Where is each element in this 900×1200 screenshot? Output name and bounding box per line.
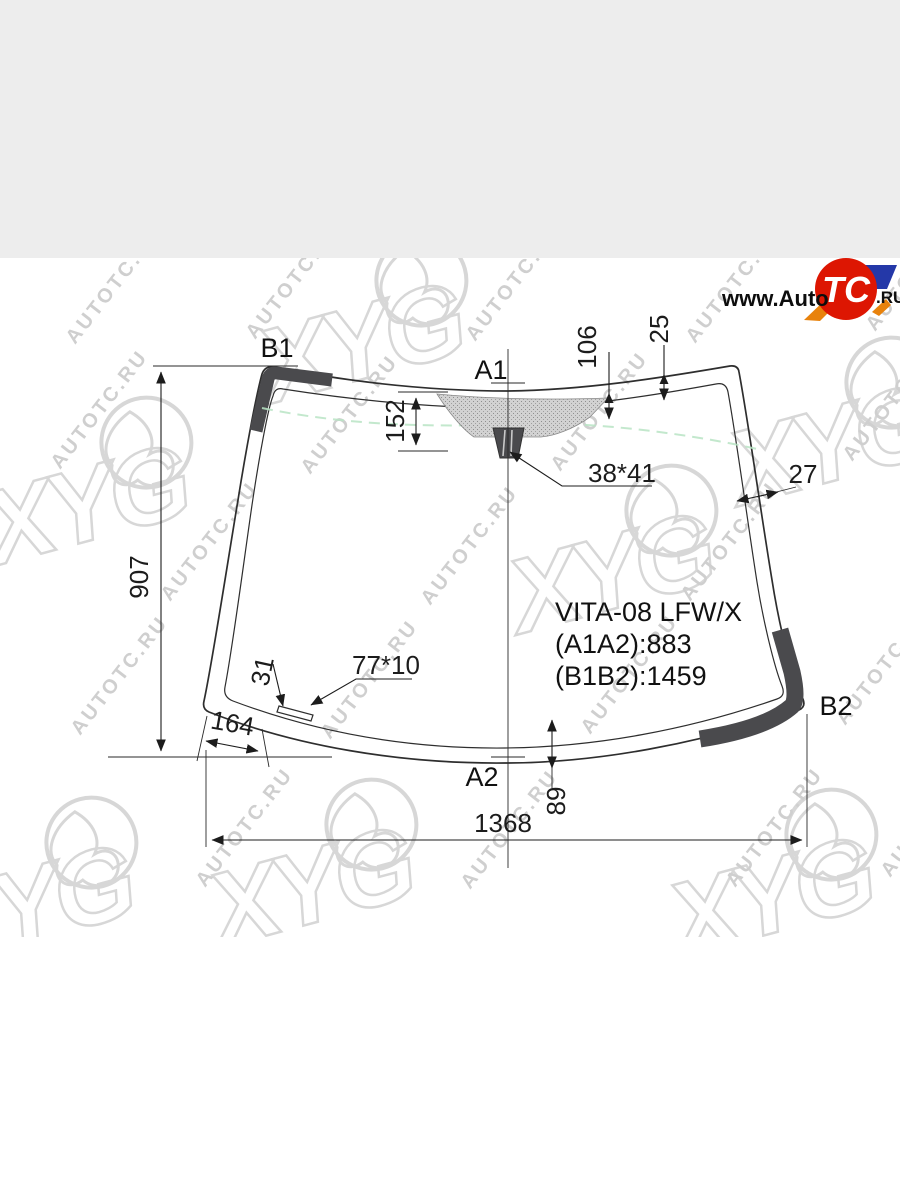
label-a1: A1 <box>474 355 507 385</box>
dim-89-label: 89 <box>541 787 571 816</box>
dim-27-label: 27 <box>789 459 818 489</box>
dim-25-label: 25 <box>644 315 674 344</box>
dim-1368-label: 1368 <box>474 808 532 838</box>
windshield-diagram-image: XYG AUTOTC.RU AUTOTC.RU AUTOTC.RU AUTOTC… <box>0 0 900 1200</box>
dim-38x41-label: 38*41 <box>588 458 656 488</box>
part-dim-a1a2: (A1A2):883 <box>555 629 692 659</box>
autotc-watermark: AUTOTC.RU <box>877 754 900 881</box>
part-dim-b1b2: (B1B2):1459 <box>555 661 707 691</box>
dim-907-label: 907 <box>124 555 154 598</box>
dim-106-label: 106 <box>572 325 602 368</box>
label-b1: B1 <box>260 333 293 363</box>
logo-ru-text: .RU <box>876 288 900 307</box>
logo-www-text: www.Auto <box>721 286 829 311</box>
dim-164-label: 164 <box>209 705 257 742</box>
top-letterbox-band <box>0 0 900 258</box>
product-image-page: XYG AUTOTC.RU AUTOTC.RU AUTOTC.RU AUTOTC… <box>0 0 900 1200</box>
xyg-watermark <box>0 787 162 989</box>
label-a2: A2 <box>465 762 498 792</box>
autotc-watermark: AUTOTC.RU <box>67 612 173 739</box>
logo-tc-text: TC <box>822 269 871 310</box>
dim-31-label: 31 <box>245 654 280 689</box>
dim-77x10-label: 77*10 <box>352 650 420 680</box>
xyg-watermark <box>643 779 900 981</box>
label-b2: B2 <box>819 691 852 721</box>
dim-152-label: 152 <box>380 399 410 442</box>
part-code: VITA-08 LFW/X <box>555 597 742 627</box>
